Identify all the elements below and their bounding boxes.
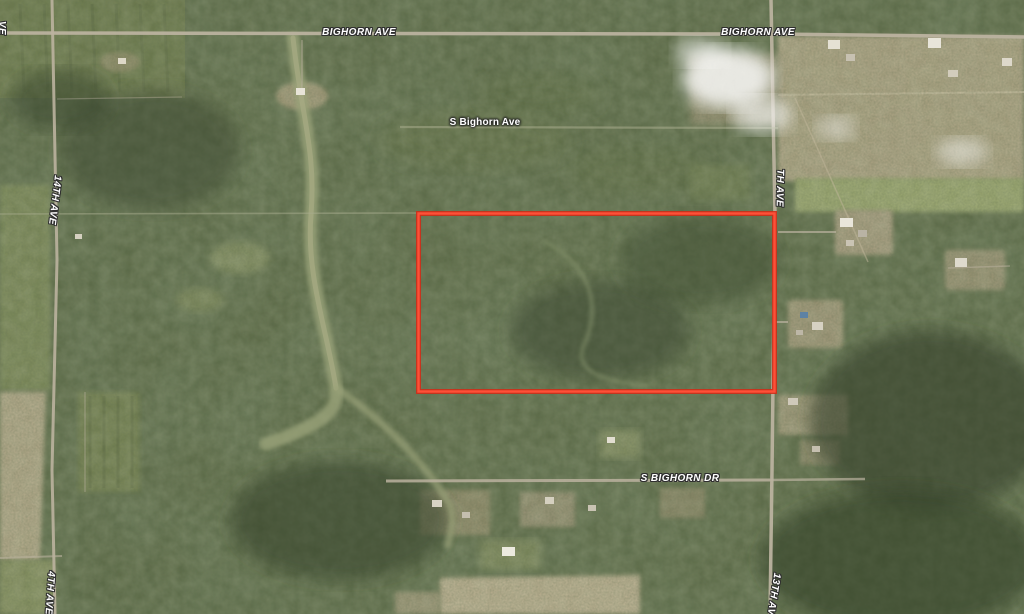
road-label-s-bighorn-dr: S BIGHORN DR (641, 474, 720, 484)
road-label-bighorn-ave-east: BIGHORN AVE (721, 28, 795, 38)
road-label-left-edge-fragment: VE (0, 21, 6, 35)
road-label-bighorn-ave-west: BIGHORN AVE (322, 28, 396, 38)
road-label-14th-ave: 14TH AVE (46, 175, 62, 226)
road-labels-layer: BIGHORN AVE BIGHORN AVE S Bighorn Ave 14… (0, 0, 1024, 614)
road-label-14th-ave-south: 4TH AVE (42, 571, 55, 614)
road-label-s-bighorn-ave: S Bighorn Ave (450, 118, 521, 128)
satellite-map[interactable]: BIGHORN AVE BIGHORN AVE S Bighorn Ave 14… (0, 0, 1024, 614)
road-label-th-ave: TH AVE (774, 169, 785, 207)
road-label-13th-ave: 13TH AV (765, 572, 782, 614)
